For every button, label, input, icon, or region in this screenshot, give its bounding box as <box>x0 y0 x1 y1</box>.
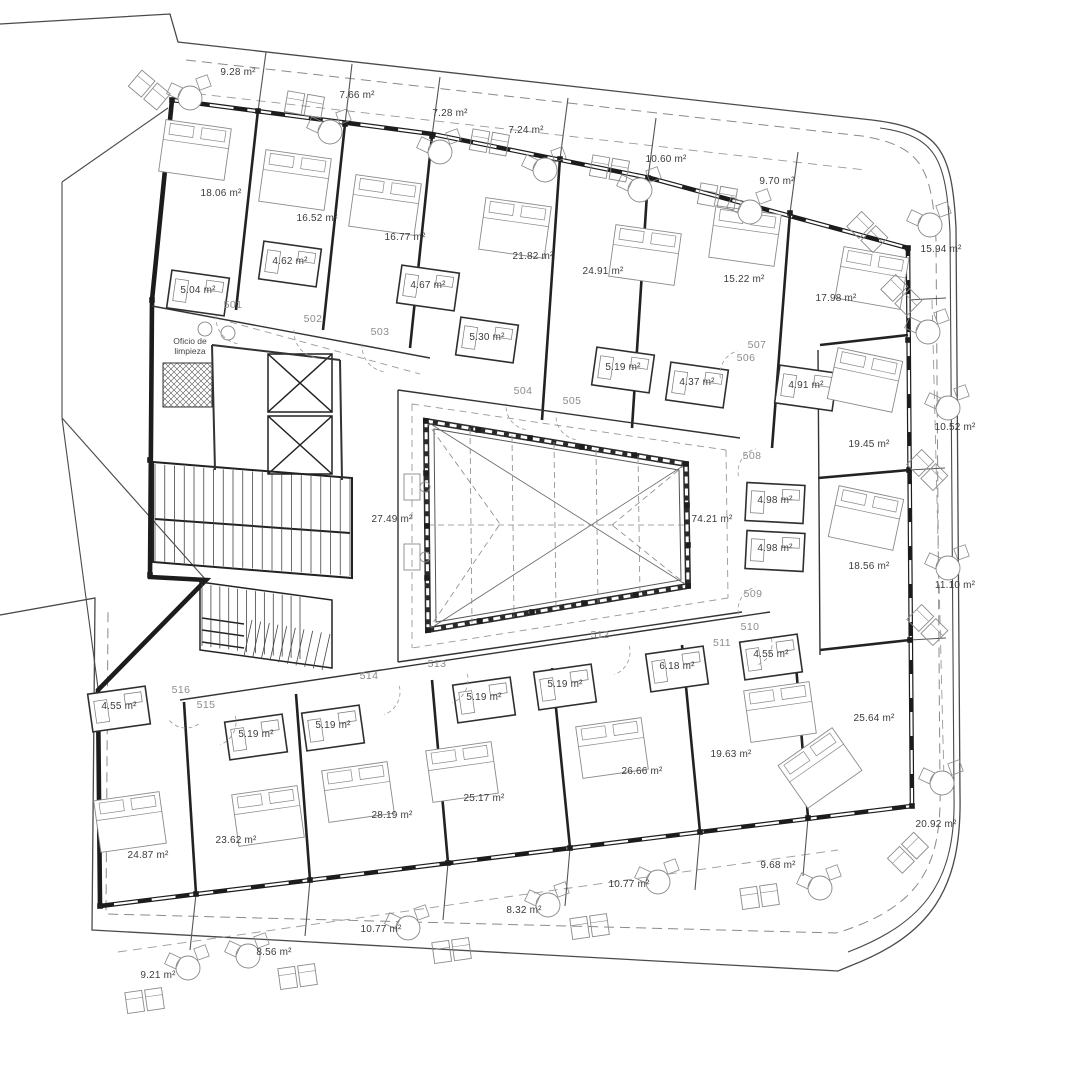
rect <box>284 91 304 115</box>
column-post <box>424 575 430 581</box>
stair-tread <box>279 626 287 662</box>
column-post <box>697 829 703 835</box>
line <box>126 997 143 999</box>
column-post <box>631 452 637 458</box>
bed <box>479 198 552 259</box>
area-label: 9.70 m² <box>759 176 795 187</box>
chair <box>254 933 269 948</box>
room-number-label: 514 <box>360 670 379 682</box>
room-number-label: 516 <box>172 684 191 696</box>
line <box>472 136 489 139</box>
plan-line <box>268 354 332 474</box>
column-post <box>905 337 911 343</box>
line <box>287 98 304 101</box>
column-post <box>193 891 199 897</box>
column-post <box>97 903 103 909</box>
area-label: 11.10 m² <box>935 580 976 591</box>
terrace-table <box>925 385 970 420</box>
area-label: 4.55 m² <box>753 649 789 660</box>
bed <box>259 150 332 211</box>
column-post <box>905 245 911 251</box>
area-label: 9.68 m² <box>760 860 796 871</box>
bed <box>827 348 902 413</box>
chair <box>414 905 429 920</box>
area-label: 21.82 m² <box>512 251 554 262</box>
rect <box>570 916 590 939</box>
door-swing-arc <box>614 646 630 675</box>
line <box>892 851 904 863</box>
line <box>299 971 316 973</box>
stair-tread <box>261 623 269 659</box>
column-post <box>477 618 483 624</box>
column-post <box>787 210 793 216</box>
column-post <box>683 461 689 467</box>
chair <box>954 385 969 400</box>
column-post <box>423 470 429 476</box>
area-label: 19.63 m² <box>710 749 752 760</box>
rect <box>827 348 902 413</box>
rect <box>452 938 472 961</box>
area-label: 15.94 m² <box>920 244 962 255</box>
chair <box>948 760 963 775</box>
door-swing-arc <box>169 720 199 728</box>
rect <box>887 846 914 873</box>
rect <box>145 988 165 1011</box>
line <box>917 609 929 621</box>
line <box>571 923 588 925</box>
sun-lounger <box>128 70 170 110</box>
room-number-label: 506 <box>737 352 756 364</box>
line <box>592 162 609 165</box>
area-label: 15.22 m² <box>723 274 765 285</box>
column-post <box>255 108 261 114</box>
terrace-table <box>907 202 952 237</box>
area-label: 4.98 m² <box>757 543 793 554</box>
rect <box>128 70 155 97</box>
column-post <box>149 297 155 303</box>
rect <box>432 940 452 963</box>
column-post <box>424 523 430 529</box>
plan-line <box>426 421 688 630</box>
stair-tread <box>322 634 330 670</box>
area-label: 5.19 m² <box>605 362 641 373</box>
line <box>153 88 166 99</box>
plan-line <box>426 421 688 630</box>
area-label: 28.19 m² <box>371 810 413 821</box>
line <box>931 624 943 636</box>
area-label: 23.62 m² <box>215 835 257 846</box>
line <box>453 945 470 947</box>
area-label: 10.60 m² <box>645 154 687 165</box>
room-number-label: 502 <box>304 313 323 325</box>
bed <box>744 682 817 743</box>
room-number-label: 507 <box>748 339 767 351</box>
area-label: 19.45 m² <box>848 439 890 450</box>
room-number-label: 510 <box>741 621 760 633</box>
terrace-table <box>925 545 970 580</box>
column-post <box>567 845 573 851</box>
column-post <box>429 133 435 139</box>
area-label: 18.06 m² <box>200 188 242 199</box>
rect <box>760 884 780 907</box>
column-post <box>169 97 175 103</box>
line <box>279 973 296 975</box>
area-label: 8.32 m² <box>506 905 542 916</box>
sun-lounger <box>847 211 888 252</box>
area-label: 74.21 m² <box>691 514 733 525</box>
column-post <box>445 860 451 866</box>
plan-line <box>163 363 212 407</box>
chair <box>826 865 841 880</box>
rect <box>828 486 903 551</box>
area-label: 7.66 m² <box>339 90 375 101</box>
area-label: 16.77 m² <box>384 232 426 243</box>
column-post <box>423 418 429 424</box>
line <box>612 165 629 168</box>
column-post <box>633 592 639 598</box>
area-label: 10.77 m² <box>360 924 402 935</box>
sink <box>221 326 235 340</box>
column-post <box>805 815 811 821</box>
stairs-elevators-layer <box>88 241 838 760</box>
bed <box>94 792 167 853</box>
rect <box>590 914 610 937</box>
sun-lounger <box>907 449 948 490</box>
column-post <box>147 572 153 578</box>
room-number-label: 503 <box>371 326 390 338</box>
area-label: 5.19 m² <box>315 720 351 731</box>
room-number-label: 509 <box>744 588 763 600</box>
chair <box>664 859 679 874</box>
area-label: 4.67 m² <box>410 280 446 291</box>
area-label: 5.04 m² <box>180 285 216 296</box>
sun-lounger <box>887 832 928 873</box>
floor-plan-drawing: 9.28 m²7.66 m²7.28 m²7.24 m²10.60 m²9.70… <box>0 0 1072 1080</box>
stair-tread <box>305 631 313 667</box>
terrace-table <box>905 309 950 344</box>
sun-lounger <box>278 964 318 990</box>
area-label: 5.19 m² <box>238 729 274 740</box>
line <box>761 891 778 893</box>
area-label: 16.52 m² <box>296 213 338 224</box>
area-label: 5.19 m² <box>547 679 583 690</box>
area-label: 7.24 m² <box>508 125 544 136</box>
sink <box>198 322 212 336</box>
area-label: 4.62 m² <box>272 256 308 267</box>
column-post <box>581 600 587 606</box>
area-label: 24.87 m² <box>127 850 169 861</box>
bed <box>828 486 903 551</box>
column-post <box>685 583 691 589</box>
rect <box>144 83 171 110</box>
column-post <box>684 502 690 508</box>
stair-tread <box>253 622 261 658</box>
rect <box>902 832 929 859</box>
chair <box>954 545 969 560</box>
terrace-table <box>919 760 964 795</box>
column-post <box>527 435 533 441</box>
room-number-label: 511 <box>713 637 731 649</box>
line <box>492 139 509 142</box>
room-number-label: 505 <box>563 395 582 407</box>
line <box>917 454 929 466</box>
area-label: 7.28 m² <box>432 108 468 119</box>
room-number-label: 501 <box>224 299 243 311</box>
area-label: 10.77 m² <box>608 879 650 890</box>
plan-line <box>426 421 688 630</box>
area-label: 17.98 m² <box>815 293 857 304</box>
area-label: 5.30 m² <box>469 332 505 343</box>
area-label: 9.28 m² <box>220 67 256 78</box>
area-label: 27.49 m² <box>371 514 413 525</box>
sun-lounger <box>125 988 165 1014</box>
door-swing-arc <box>384 686 400 715</box>
stair-tread <box>313 632 321 668</box>
line <box>857 216 869 228</box>
rect <box>740 886 760 909</box>
chair <box>756 189 771 204</box>
area-label: 25.64 m² <box>853 713 895 724</box>
area-label: 20.92 m² <box>915 819 957 830</box>
door-swing-arc <box>556 414 576 440</box>
floor-plan-page: 9.28 m²7.66 m²7.28 m²7.24 m²10.60 m²9.70… <box>0 0 1072 1080</box>
rect <box>278 966 298 989</box>
line <box>591 921 608 923</box>
area-label: 6.18 m² <box>659 661 695 672</box>
room-number-label: 515 <box>197 699 216 711</box>
column-post <box>685 542 691 548</box>
line <box>307 101 324 104</box>
column-post <box>529 609 535 615</box>
column-post <box>579 444 585 450</box>
bed <box>778 728 862 808</box>
column-post <box>147 457 153 463</box>
area-label: 4.91 m² <box>788 380 824 391</box>
line <box>741 893 758 895</box>
rect <box>921 619 948 646</box>
area-label: 10.52 m² <box>934 422 976 433</box>
column-post <box>307 877 313 883</box>
area-label: 25.17 m² <box>463 793 505 804</box>
chair <box>194 945 209 960</box>
room-number-label: 504 <box>514 385 533 397</box>
chair <box>196 75 211 90</box>
stair-tread <box>270 625 278 661</box>
room-number-label: 508 <box>743 450 762 462</box>
line <box>146 995 163 997</box>
column-post <box>907 637 913 643</box>
rect <box>125 990 145 1013</box>
room-number-label: 513 <box>428 658 447 670</box>
line <box>931 469 943 481</box>
area-label: 24.91 m² <box>582 266 624 277</box>
line <box>907 837 919 849</box>
column-post <box>909 803 915 809</box>
bed <box>159 120 232 181</box>
furniture-layer <box>94 70 969 1013</box>
line <box>137 75 150 86</box>
area-label: 5.19 m² <box>466 692 502 703</box>
area-label: 18.56 m² <box>848 561 890 572</box>
sun-lounger <box>740 884 780 910</box>
area-label: 9.21 m² <box>140 970 176 981</box>
area-label: 26.66 m² <box>621 766 663 777</box>
area-label: 8.56 m² <box>256 947 292 958</box>
area-label: 4.55 m² <box>101 701 137 712</box>
plan-line <box>426 421 688 630</box>
column-post <box>475 427 481 433</box>
column-post <box>425 627 431 633</box>
area-label: 4.98 m² <box>757 495 793 506</box>
room-number-label: 512 <box>591 629 610 641</box>
area-label: 4.37 m² <box>679 377 715 388</box>
rect <box>298 964 318 987</box>
cleaning-room-label: Oficio delimpieza <box>173 336 207 356</box>
bed <box>349 175 422 236</box>
stair-tread <box>244 620 252 656</box>
